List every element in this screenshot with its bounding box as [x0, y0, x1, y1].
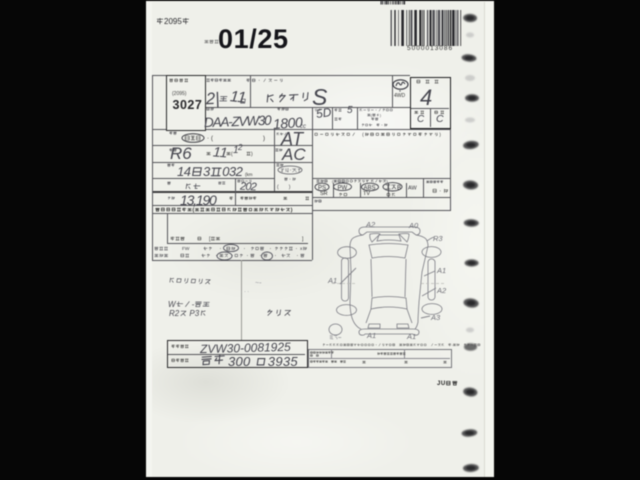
svg-text:3: 3 — [203, 165, 211, 179]
svg-text:R3: R3 — [433, 234, 443, 243]
svg-text:): ) — [289, 184, 291, 190]
svg-text:[: [ — [209, 236, 211, 242]
svg-text:B: B — [397, 186, 401, 192]
svg-text:(: ( — [211, 136, 213, 142]
svg-text:]: ] — [302, 236, 304, 242]
svg-text:R2: R2 — [169, 309, 180, 318]
svg-text:A0: A0 — [408, 221, 419, 230]
svg-text:A1: A1 — [436, 266, 446, 275]
svg-text:A1: A1 — [366, 331, 376, 340]
svg-text:A1: A1 — [327, 276, 337, 285]
svg-text:A3: A3 — [430, 313, 441, 322]
svg-text:x: x — [300, 247, 303, 252]
svg-text:P3: P3 — [189, 309, 199, 318]
svg-text:2095: 2095 — [164, 17, 182, 26]
svg-text:(: ( — [362, 132, 364, 137]
svg-text:): ) — [251, 151, 253, 157]
svg-text:A1: A1 — [406, 332, 416, 341]
svg-text:4WD: 4WD — [394, 93, 406, 98]
svg-text:): ) — [263, 136, 265, 142]
svg-text:AW: AW — [408, 186, 417, 192]
svg-text:PW: PW — [338, 186, 348, 192]
svg-text:): ) — [291, 207, 293, 213]
svg-text:300: 300 — [228, 355, 251, 369]
svg-text:FW: FW — [182, 246, 190, 252]
svg-text:14: 14 — [177, 165, 191, 179]
svg-text:): ) — [439, 132, 441, 137]
svg-text:(: ( — [193, 207, 195, 213]
svg-text:A2: A2 — [365, 220, 376, 229]
svg-text:JU: JU — [437, 381, 446, 387]
svg-text:A2: A2 — [436, 286, 447, 295]
svg-text:032: 032 — [222, 165, 243, 179]
svg-text:(: ( — [277, 184, 279, 190]
svg-text:3935: 3935 — [268, 355, 299, 369]
